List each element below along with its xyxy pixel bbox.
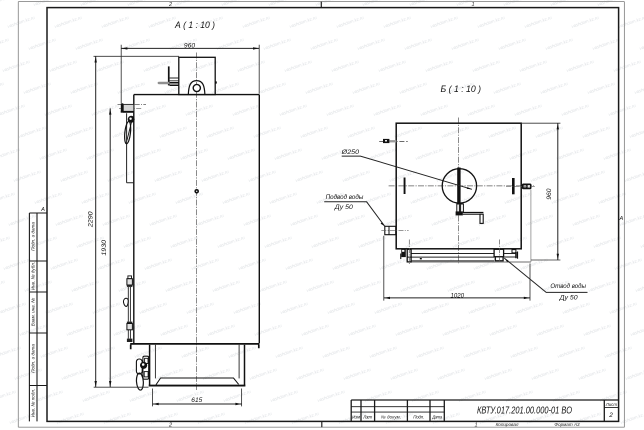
svg-text:Подп. и дата: Подп. и дата [31, 222, 36, 251]
svg-text:Формат А3: Формат А3 [554, 422, 580, 427]
svg-text:1020: 1020 [451, 292, 465, 299]
svg-text:Подп.: Подп. [413, 414, 424, 419]
svg-text:Ду 50: Ду 50 [559, 295, 579, 302]
svg-text:Б ( 1 : 10 ): Б ( 1 : 10 ) [441, 84, 482, 94]
svg-text:Копировал: Копировал [496, 422, 519, 427]
svg-text:1930: 1930 [101, 240, 108, 256]
svg-text:960: 960 [546, 188, 553, 200]
svg-text:Инв. № подл.: Инв. № подл. [31, 389, 36, 418]
svg-text:1: 1 [474, 422, 477, 428]
svg-text:Дата: Дата [431, 414, 443, 419]
svg-text:А: А [40, 207, 45, 213]
svg-text:№ докум.: № докум. [381, 414, 401, 419]
svg-text:2: 2 [608, 412, 613, 419]
svg-text:Ø250: Ø250 [341, 149, 360, 156]
svg-text:Отвод воды: Отвод воды [550, 282, 586, 290]
svg-text:615: 615 [191, 397, 202, 404]
svg-text:Лист: Лист [605, 402, 618, 407]
svg-text:Инв. № дубл.: Инв. № дубл. [31, 262, 36, 290]
svg-text:Изм: Изм [352, 414, 360, 419]
svg-text:2290: 2290 [87, 211, 94, 228]
svg-text:Ду 50: Ду 50 [334, 204, 354, 211]
svg-text:А ( 1 : 10 ): А ( 1 : 10 ) [174, 20, 215, 30]
svg-text:КВТУ.017.201.00.000-01 ВО: КВТУ.017.201.00.000-01 ВО [477, 406, 572, 417]
svg-text:Подвод воды: Подвод воды [326, 193, 364, 201]
svg-text:Подп. и дата: Подп. и дата [31, 344, 36, 373]
svg-text:Взам. инв. №: Взам. инв. № [31, 298, 36, 326]
svg-text:Лист: Лист [362, 414, 372, 419]
svg-text:960: 960 [184, 43, 196, 50]
